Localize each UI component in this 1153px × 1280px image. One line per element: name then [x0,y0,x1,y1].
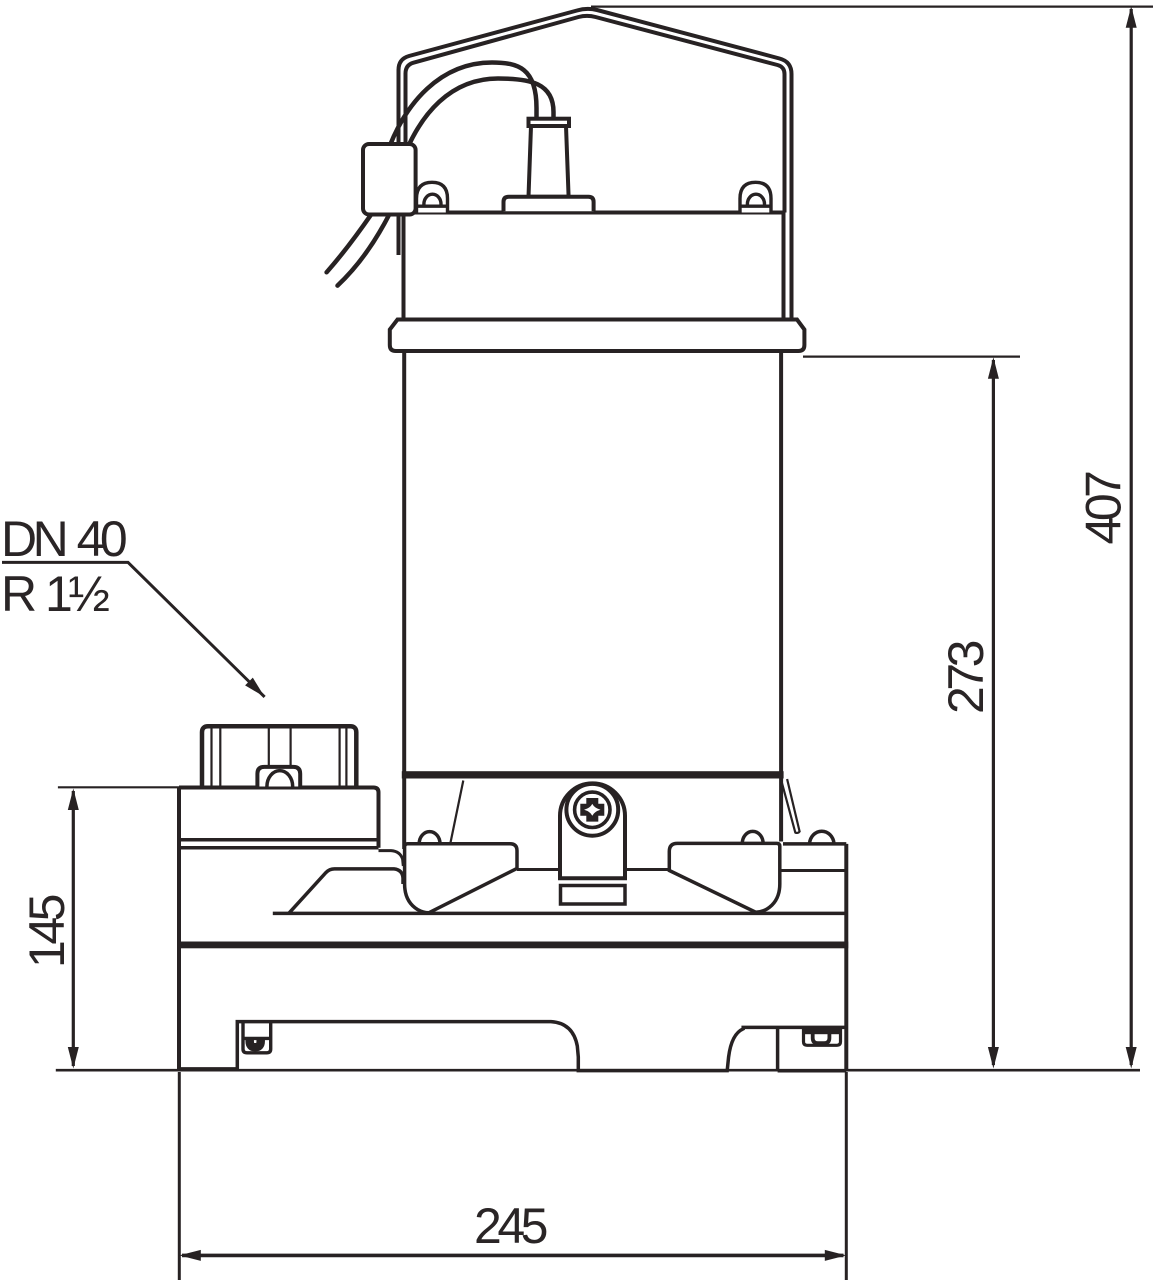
svg-text:R 1½: R 1½ [1,566,109,622]
svg-text:407: 407 [1076,472,1132,545]
svg-text:245: 245 [474,1198,547,1254]
svg-text:273: 273 [938,641,994,714]
svg-text:145: 145 [19,895,75,968]
svg-text:DN 40: DN 40 [1,511,126,567]
